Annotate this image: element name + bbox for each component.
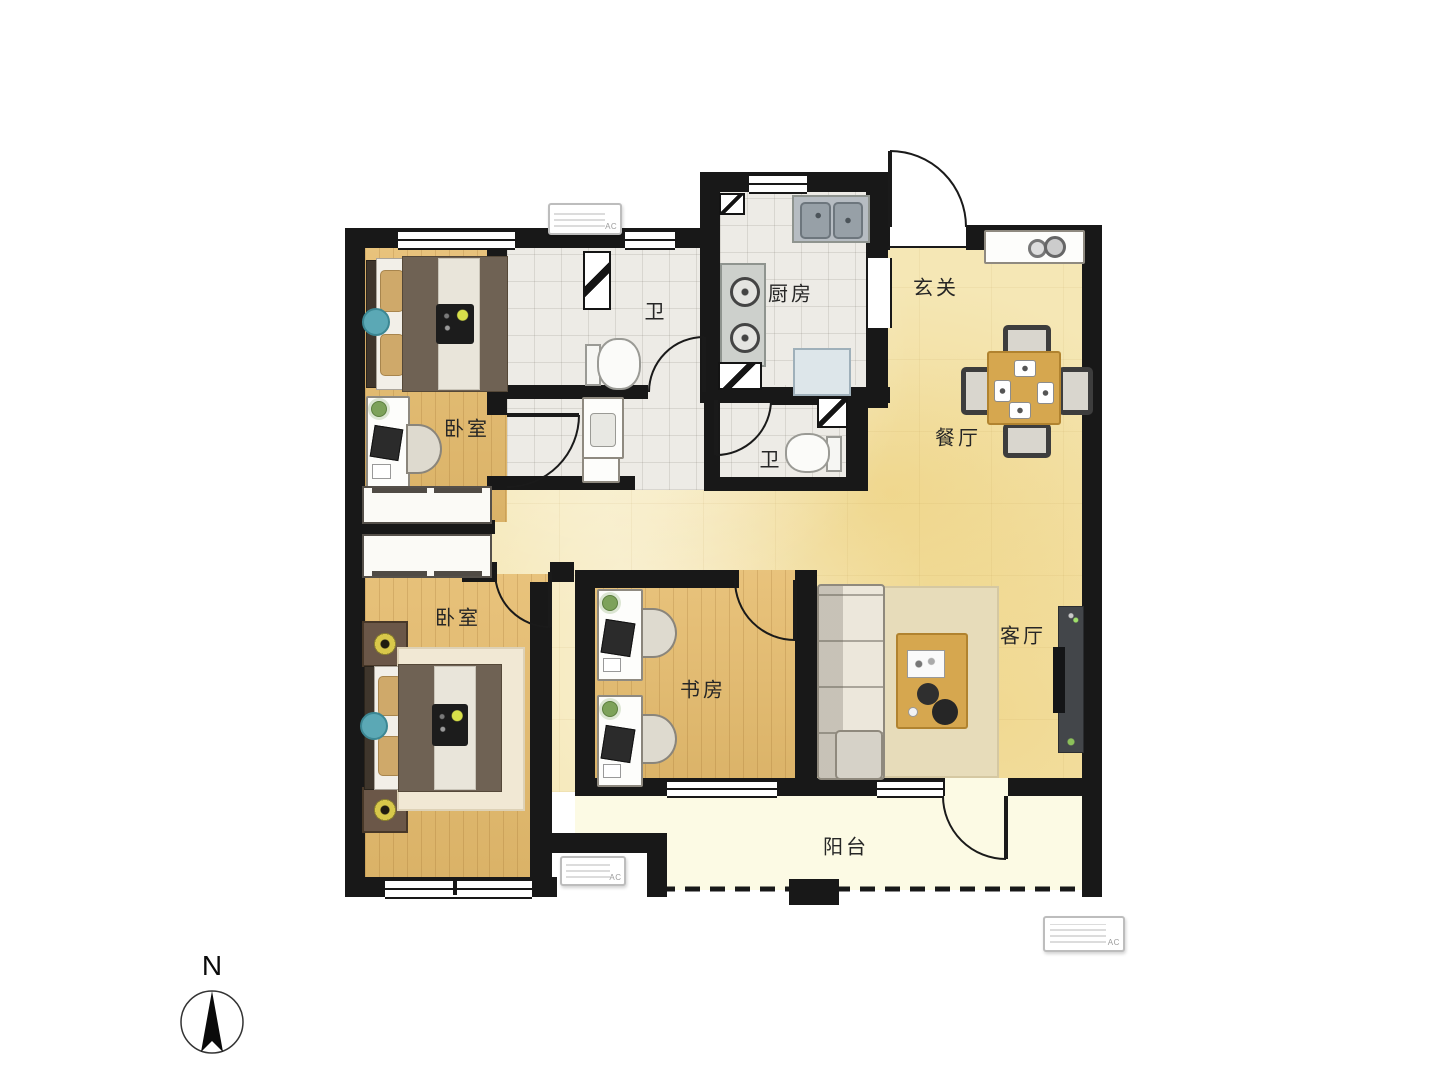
room-label-bedroom-top: 卧室 <box>444 413 490 442</box>
floor-plan: AC AC AC 卧室 卫 厨房 玄关 <box>0 0 1440 1080</box>
bedroom-bottom-door-arc <box>495 572 550 627</box>
compass: N <box>170 945 260 1065</box>
room-label-dining: 餐厅 <box>935 422 981 451</box>
room-label-entry: 玄关 <box>913 272 959 301</box>
compass-north-arrow <box>201 991 223 1052</box>
compass-icon: N <box>170 945 260 1065</box>
bedroom-top-door-arc <box>507 415 579 487</box>
room-label-kitchen: 厨房 <box>768 278 814 307</box>
room-label-balcony: 阳台 <box>823 831 869 860</box>
study-door-arc <box>735 580 795 640</box>
room-label-study: 书房 <box>680 674 726 703</box>
room-label-living: 客厅 <box>1000 620 1046 649</box>
door-swings-overlay <box>0 0 1440 1080</box>
balcony-door-arc <box>943 796 1006 859</box>
compass-north-label: N <box>202 950 222 981</box>
bath-top-door-arc <box>649 337 704 392</box>
room-label-bedroom-bottom: 卧室 <box>435 602 481 631</box>
entry-door-arc <box>890 151 966 227</box>
room-label-bath-mid: 卫 <box>760 444 783 473</box>
room-label-bath-top: 卫 <box>645 296 668 325</box>
balcony-railing-pier <box>789 879 839 905</box>
